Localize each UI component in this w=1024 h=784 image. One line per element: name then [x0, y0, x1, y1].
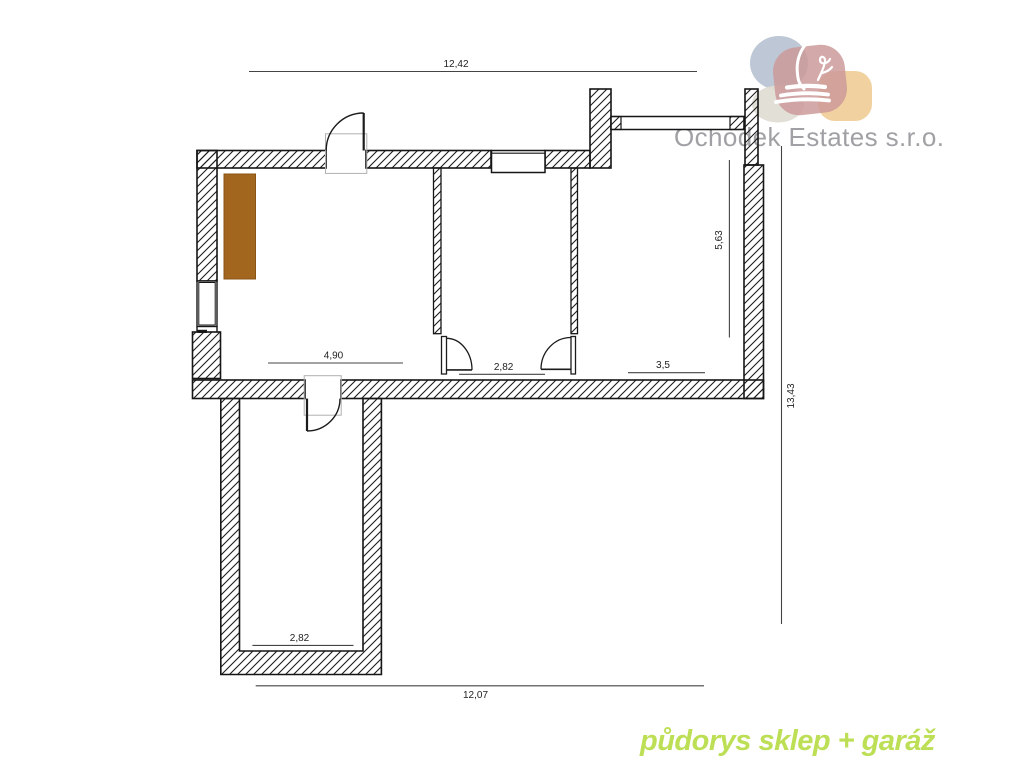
svg-text:4,90: 4,90: [324, 351, 344, 362]
svg-text:2,82: 2,82: [290, 633, 310, 644]
svg-text:2,82: 2,82: [494, 362, 514, 373]
svg-text:13,43: 13,43: [786, 383, 797, 408]
svg-text:3,5: 3,5: [656, 360, 670, 371]
svg-text:5,63: 5,63: [714, 230, 725, 250]
svg-text:půdorys sklep + garáž: půdorys sklep + garáž: [639, 725, 936, 757]
svg-text:12,07: 12,07: [463, 690, 488, 701]
svg-text:12,42: 12,42: [443, 59, 468, 70]
